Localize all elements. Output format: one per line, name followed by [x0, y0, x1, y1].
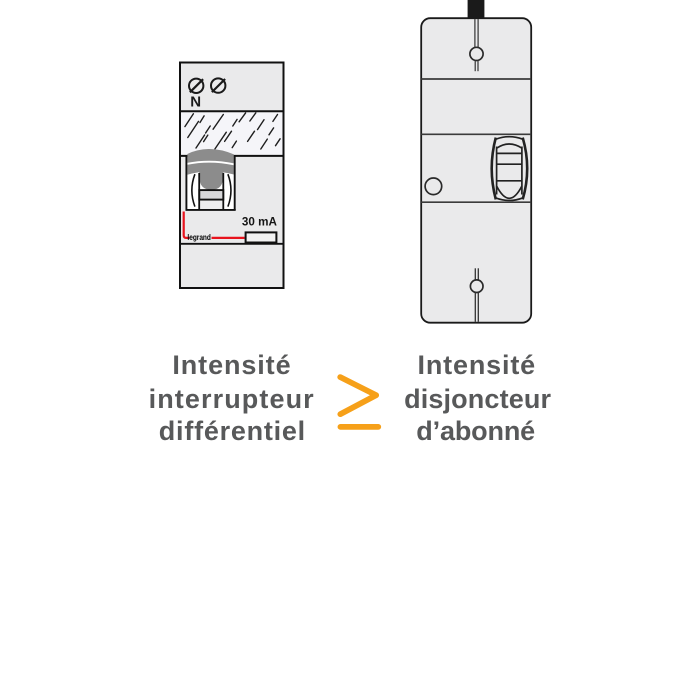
- svg-text:Intensité: Intensité: [172, 350, 290, 380]
- svg-text:N: N: [190, 94, 201, 111]
- svg-text:d’abonné: d’abonné: [416, 416, 535, 446]
- svg-text:legrand: legrand: [187, 233, 211, 242]
- svg-text:différentiel: différentiel: [159, 416, 305, 446]
- svg-text:interrupteur: interrupteur: [149, 384, 315, 414]
- svg-text:Intensité: Intensité: [418, 350, 536, 380]
- svg-text:disjoncteur: disjoncteur: [404, 384, 551, 414]
- svg-text:30 mA: 30 mA: [242, 215, 277, 229]
